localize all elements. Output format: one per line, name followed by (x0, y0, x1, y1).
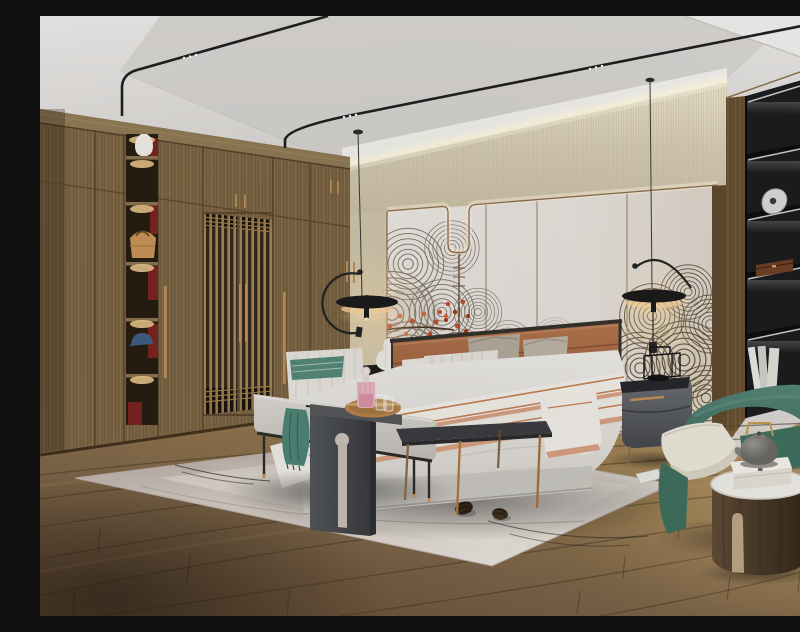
bedroom-render (40, 16, 800, 616)
runner-drape (540, 392, 602, 458)
glasses (376, 395, 393, 411)
niche-handbag (130, 231, 156, 258)
teal-throw (282, 408, 309, 471)
display-niche (126, 128, 158, 425)
lattice-doors (203, 213, 273, 415)
shelf-column (746, 80, 800, 418)
